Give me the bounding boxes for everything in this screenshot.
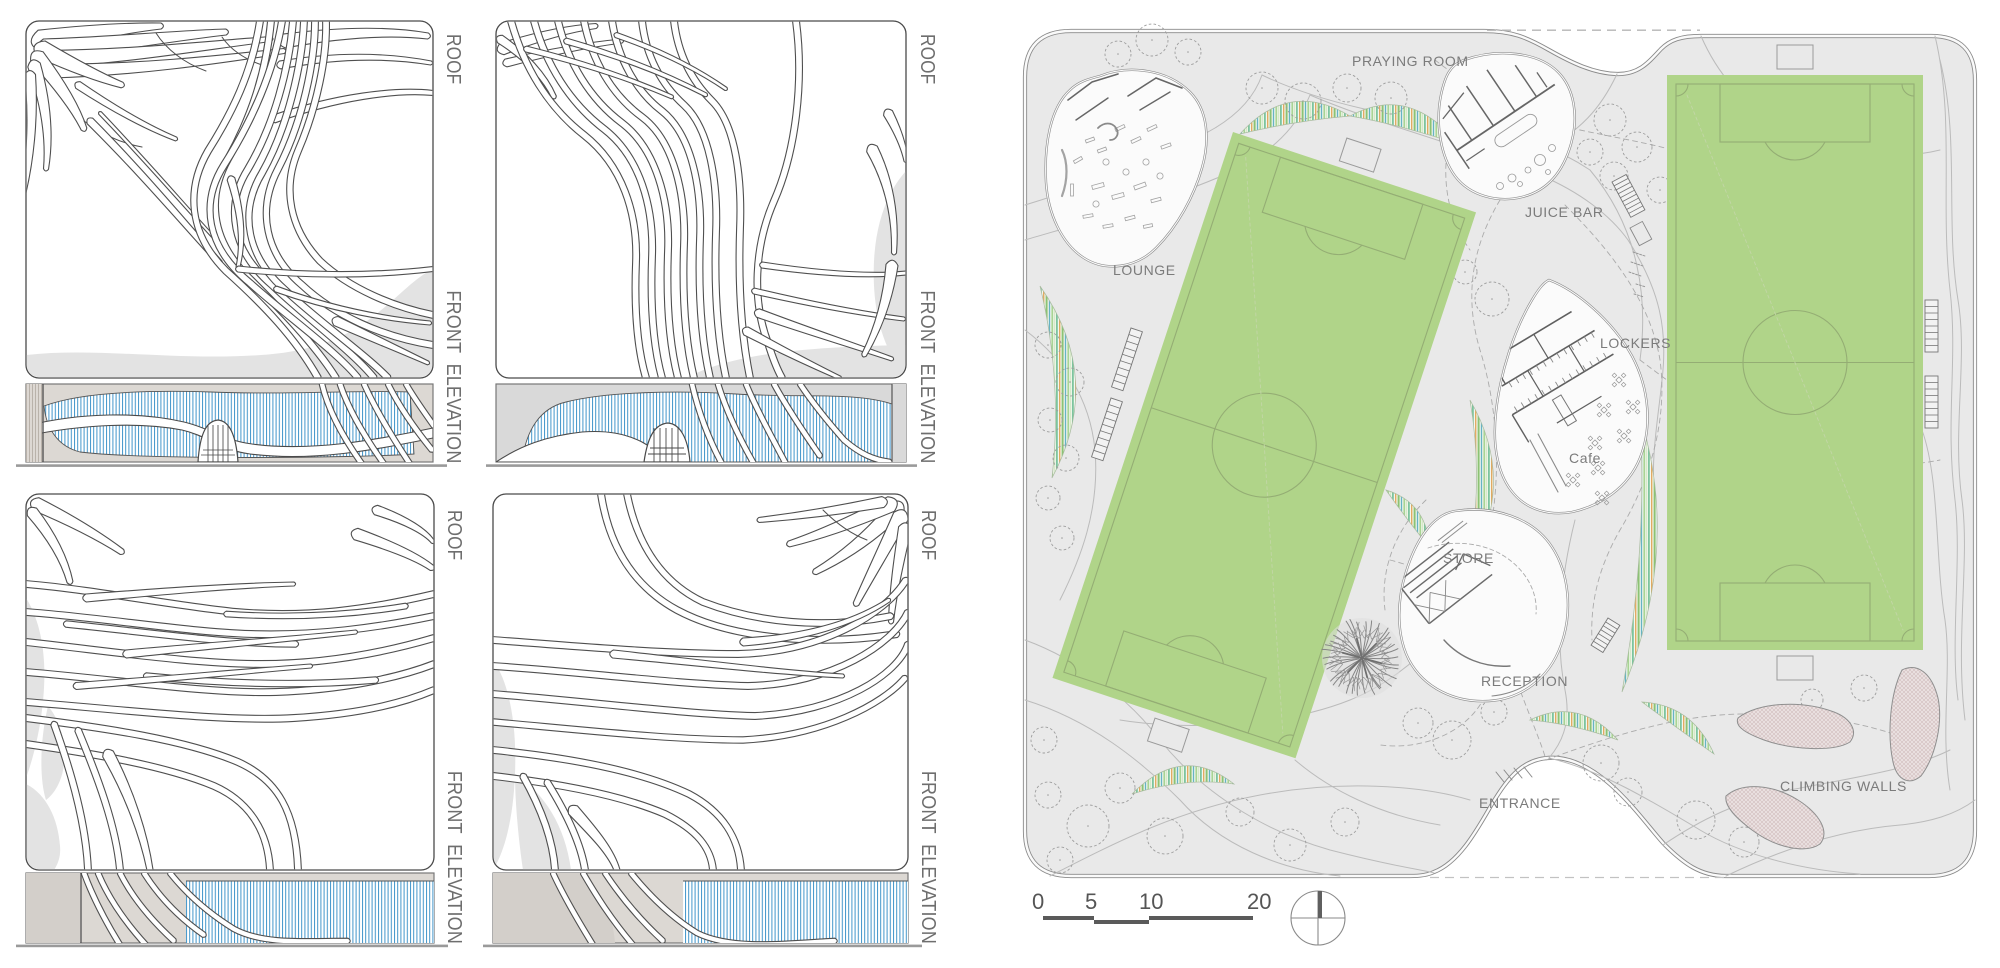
svg-text:FRONT ELEVATION: FRONT ELEVATION (443, 771, 465, 944)
svg-text:CLIMBING WALLS: CLIMBING WALLS (1780, 778, 1907, 794)
svg-text:ROOF: ROOF (917, 34, 940, 84)
svg-text:Cafe: Cafe (1569, 450, 1601, 466)
svg-text:5: 5 (1085, 889, 1097, 914)
svg-text:PRAYING ROOM: PRAYING ROOM (1352, 53, 1469, 69)
svg-text:LOCKERS: LOCKERS (1600, 335, 1671, 351)
svg-text:10: 10 (1139, 889, 1163, 914)
svg-text:0: 0 (1032, 889, 1044, 914)
svg-text:JUICE BAR: JUICE BAR (1525, 204, 1604, 220)
svg-text:FRONT ELEVATION: FRONT ELEVATION (917, 771, 939, 944)
svg-text:ENTRANCE: ENTRANCE (1479, 795, 1561, 811)
svg-text:LOUNGE: LOUNGE (1113, 262, 1176, 278)
svg-text:ROOF: ROOF (443, 34, 466, 84)
svg-text:20: 20 (1247, 889, 1271, 914)
svg-text:STORE: STORE (1443, 550, 1494, 566)
svg-text:FRONT ELEVATION: FRONT ELEVATION (442, 290, 464, 463)
svg-text:RECEPTION: RECEPTION (1481, 673, 1568, 689)
svg-text:ROOF: ROOF (918, 510, 941, 560)
svg-text:ROOF: ROOF (444, 510, 467, 560)
svg-text:FRONT ELEVATION: FRONT ELEVATION (916, 290, 938, 463)
